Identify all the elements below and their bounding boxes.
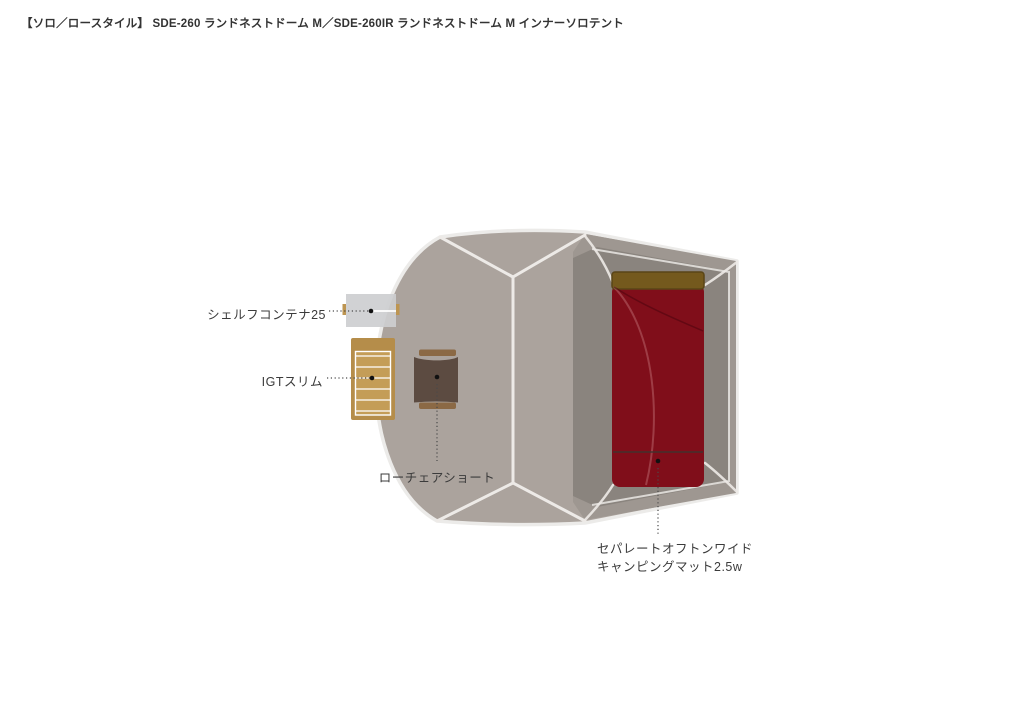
igt-slat-area: [356, 352, 391, 416]
shelf-container-handle-right: [396, 304, 400, 315]
camping-mat: [612, 284, 704, 487]
marker-dot-shelf-container: [369, 309, 374, 314]
mat-pillow: [612, 272, 704, 289]
label-low-chair: ローチェアショート: [357, 467, 517, 486]
label-shelf-container: シェルフコンテナ25: [176, 304, 326, 323]
label-igt-slim: IGTスリム: [173, 371, 323, 390]
label-camping-mat: セパレートオフトンワイド キャンピングマット2.5w: [597, 541, 753, 576]
tent-floorplan-svg: [0, 0, 1024, 724]
marker-dot-igt: [370, 376, 375, 381]
marker-dot-chair: [435, 375, 440, 380]
tent-layout-diagram: 【ソロ／ロースタイル】 SDE-260 ランドネストドーム M／SDE-260I…: [0, 0, 1024, 724]
chair-armrest-top: [419, 350, 456, 357]
marker-dot-mat: [656, 459, 661, 464]
shelf-container-handle-left: [343, 304, 347, 315]
chair-body: [414, 357, 458, 403]
label-camping-mat-line1: セパレートオフトンワイド: [597, 541, 753, 559]
label-camping-mat-line2: キャンピングマット2.5w: [597, 559, 753, 577]
